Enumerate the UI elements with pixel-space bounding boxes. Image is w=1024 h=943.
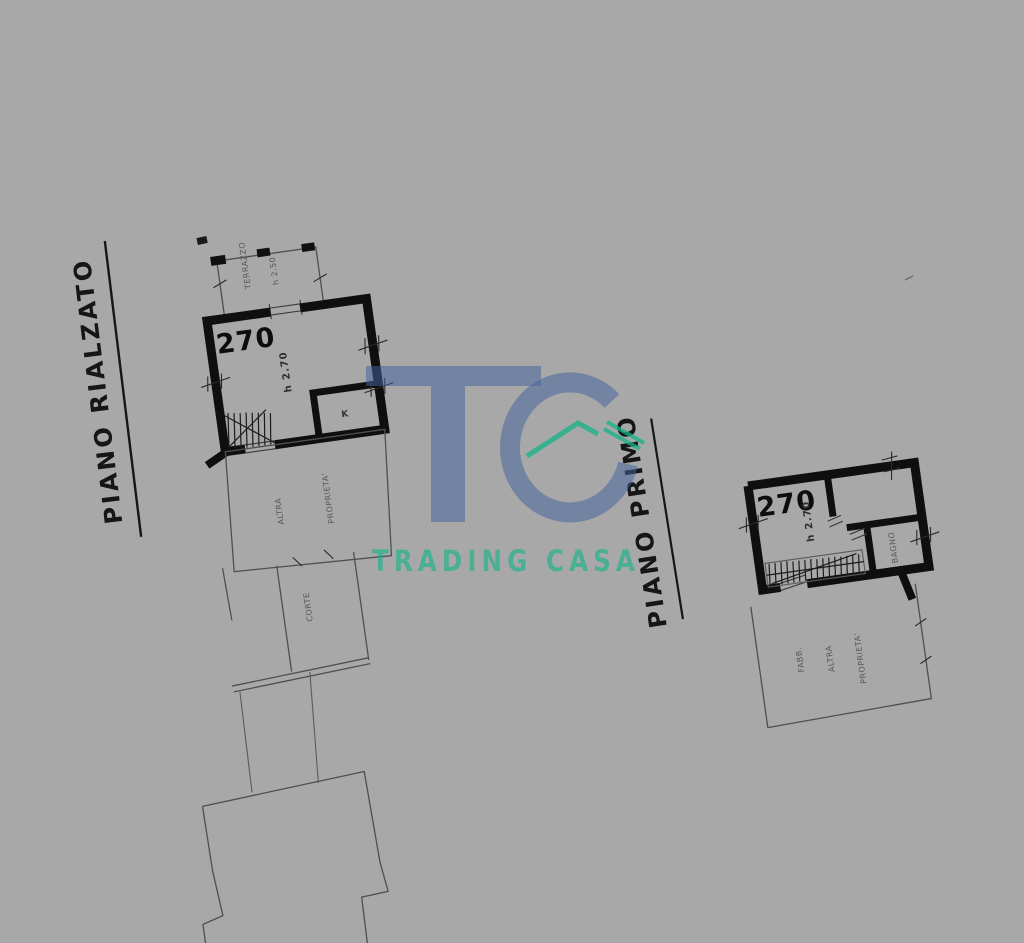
floorplan-drawing: PIANO RIALZATO PIANO PRIMO TERRAZZO h 2.… bbox=[0, 0, 1024, 943]
scanned-floorplan-page: PIANO RIALZATO PIANO PRIMO TERRAZZO h 2.… bbox=[0, 0, 1024, 943]
watermark-brand-name: TRADING CASA bbox=[372, 544, 640, 578]
